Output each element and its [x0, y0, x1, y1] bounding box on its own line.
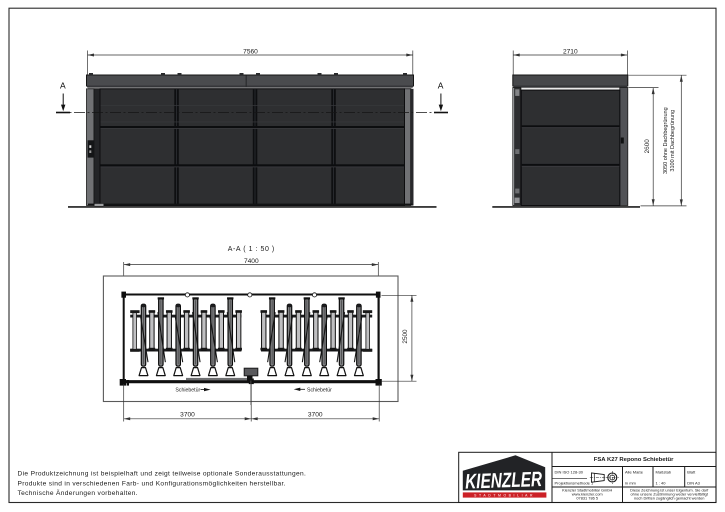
svg-text:2600: 2600: [644, 139, 651, 154]
svg-text:3100 mit Dachbegrünung: 3100 mit Dachbegrünung: [670, 110, 676, 172]
svg-text:Schiebetür: Schiebetür: [175, 388, 200, 394]
svg-text:DIN A3: DIN A3: [687, 481, 700, 486]
svg-text:1 : 40: 1 : 40: [656, 481, 667, 486]
svg-text:3050 ohne Dachbegrünung: 3050 ohne Dachbegrünung: [663, 107, 669, 174]
svg-text:7560: 7560: [243, 49, 258, 56]
svg-text:noch Dritten zugänglich gemach: noch Dritten zugänglich gemacht werden: [634, 495, 705, 500]
svg-text:3700: 3700: [308, 412, 323, 419]
svg-text:2710: 2710: [563, 49, 578, 56]
svg-text:Projektionsmethode 1: Projektionsmethode 1: [555, 481, 594, 486]
svg-text:in mm: in mm: [625, 481, 637, 486]
svg-text:STADTMOBILIAR: STADTMOBILIAR: [474, 494, 535, 498]
svg-text:Blatt: Blatt: [687, 470, 696, 475]
svg-text:Maßstab: Maßstab: [656, 470, 672, 475]
svg-text:KIENZLER: KIENZLER: [465, 468, 543, 494]
svg-text:3700: 3700: [180, 412, 195, 419]
svg-text:FSA K27 Repono Schiebetür: FSA K27 Repono Schiebetür: [594, 457, 674, 463]
svg-text:Die Produktzeichnung ist beisp: Die Produktzeichnung ist beispielhaft un…: [18, 471, 307, 478]
svg-text:Produkte sind in verschiedenen: Produkte sind in verschiedenen Farb- und…: [18, 481, 286, 488]
svg-text:2500: 2500: [402, 329, 409, 344]
svg-text:A-A ( 1 : 50 ): A-A ( 1 : 50 ): [228, 246, 275, 253]
svg-text:07831 786 5: 07831 786 5: [576, 495, 598, 500]
svg-text:Schiebetür: Schiebetür: [307, 387, 332, 393]
svg-text:Technische Änderungen vorbehal: Technische Änderungen vorbehalten.: [18, 489, 138, 497]
svg-text:7400: 7400: [244, 258, 259, 265]
svg-text:DIN ISO 128-30: DIN ISO 128-30: [555, 470, 584, 475]
svg-text:Alle Maße: Alle Maße: [625, 470, 644, 475]
svg-text:A: A: [60, 80, 66, 90]
svg-text:A: A: [438, 80, 444, 90]
